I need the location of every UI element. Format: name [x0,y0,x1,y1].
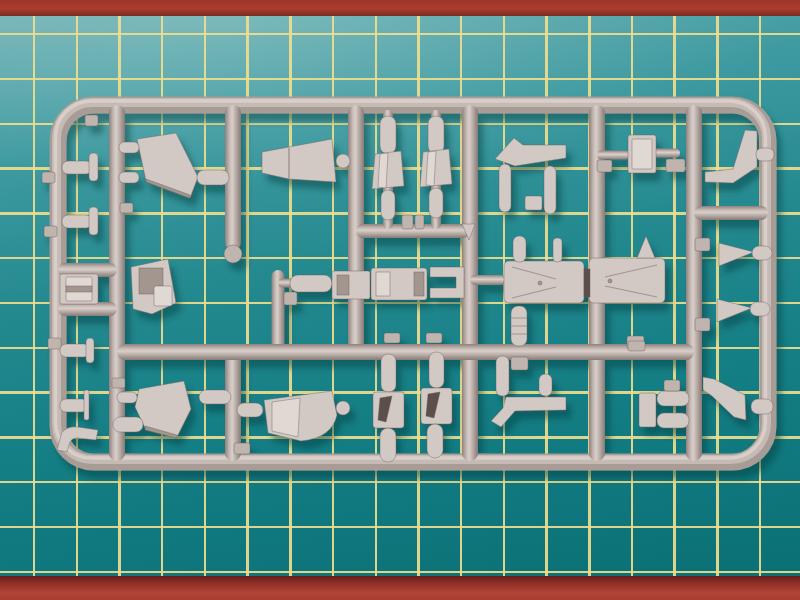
yoke-part [430,267,464,298]
tank-half-2 [428,116,444,154]
wing-plate-left [504,261,584,303]
fin-part-2 [717,299,752,322]
bullet-hang-3 [496,356,509,396]
ribbed-gate-10 [628,341,645,351]
gate-tab-2 [44,226,57,237]
hatch-part [628,135,656,173]
block-part-1 [525,196,542,210]
flap-panel-2 [420,149,452,187]
ball-end-runner [224,245,242,263]
ball-stub-1 [336,154,350,168]
wing-panel-bottom-left [135,381,191,438]
stub-bullet-1 [119,142,139,153]
cyl-col-b [429,352,444,388]
flap-panel-1 [372,151,404,189]
gate-tab-4 [112,378,125,388]
gate-tab-1 [42,172,55,183]
clip-part [284,292,297,305]
bullet-col-b [427,424,443,458]
bracket-blade-part [705,130,757,183]
vent-panel-1 [373,392,404,428]
vent-panel-2 [421,388,452,424]
ribbed-gate-7 [234,443,250,454]
sprue-photo [0,0,800,600]
bullet-hang-4 [539,374,552,396]
rod-above-plate [553,238,562,262]
cyl-part-2 [429,188,443,218]
nose-cone-part [262,139,336,182]
bullet-right-4 [751,399,773,414]
bullet-right-1 [756,148,774,161]
cockpit-tub-part [131,259,176,314]
sprue [42,101,774,462]
small-knob-part-1 [62,153,98,181]
stub-cyl-2 [113,417,143,432]
ribbed-gate-5 [695,318,710,331]
stub-bullet-3 [117,392,137,403]
bullet-right-mid [237,403,263,417]
ribbed-gate-4 [695,238,710,251]
gate-tab-top [85,115,98,126]
instrument-panel-part [60,274,98,304]
small-knob-part-2 [62,207,98,235]
ribbed-gate-2 [597,160,612,172]
bullet-right-3 [750,302,770,316]
plate-small-part [639,393,656,427]
cone-above-plate [637,236,655,258]
fin-part-1 [719,243,754,266]
slot-shadow [584,269,590,297]
tank-half-1 [380,116,396,154]
bullet-col-a [380,428,396,462]
bullet-hang-1 [499,164,511,212]
ribbed-gate-1 [402,215,424,229]
ribbed-gate-8 [511,357,528,370]
bullet-pair-2 [657,413,689,428]
pad-col-b [426,333,442,343]
engine-box-2 [371,268,427,300]
stub-bullet-2 [119,172,139,183]
photo-scene [0,0,800,600]
ribbed-gate-3 [666,159,685,172]
bullet-hang-2 [544,166,556,214]
wing-plate-right [589,258,665,303]
cyl-col-a [381,354,396,392]
engine-bullet [290,275,332,292]
bullet-above-plate [513,236,526,262]
ball-stub-2 [336,401,350,415]
engine-box-1 [332,271,370,299]
stub-cyl-left [197,170,229,185]
pad-col-a [384,333,400,343]
step-bar-part [491,397,566,427]
cyl-part-1 [381,190,395,220]
stabilizer-part [495,138,566,166]
wing-panel-top-left [137,133,198,198]
bullet-right-2 [752,246,772,260]
check-blade-part [703,377,746,420]
bullet-pair-1 [657,391,689,406]
ribbed-gate-9 [664,380,680,391]
cowl-panel-part [264,391,337,441]
bullet-left-mid [199,390,231,404]
gate-tab-3 [120,203,133,213]
ribbed-bullet-below [511,306,527,346]
